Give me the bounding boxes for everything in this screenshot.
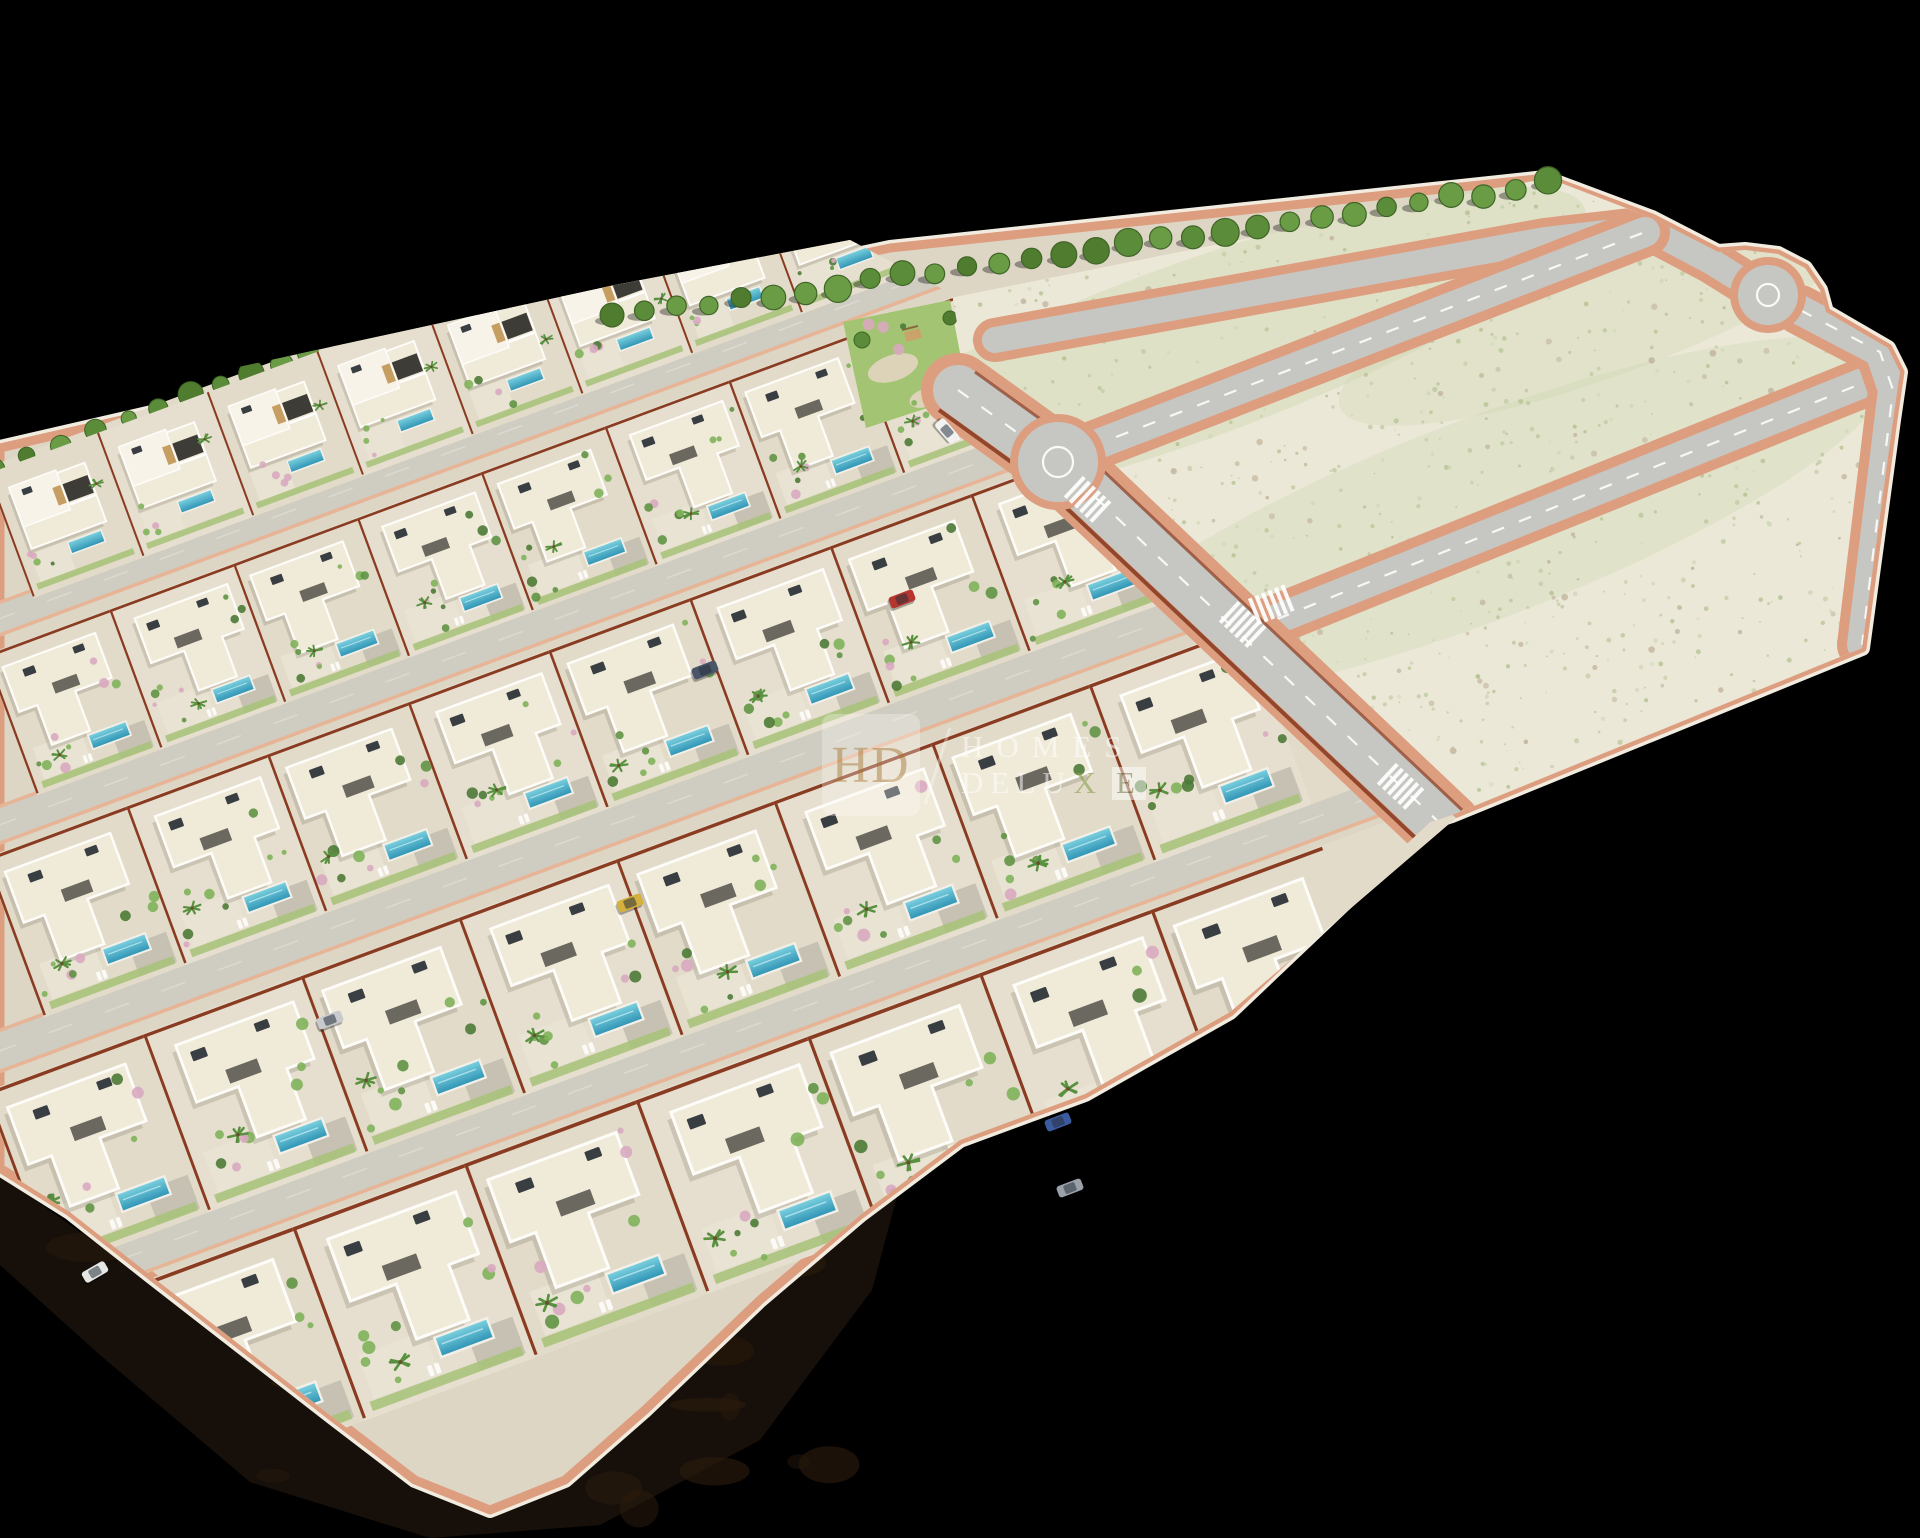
- aerial-render-stage: HD HOMES DELUXE: [0, 0, 1920, 1538]
- development-render: [0, 0, 1920, 1538]
- roundabout-2: [1730, 257, 1806, 333]
- roundabout-1: [1010, 414, 1106, 510]
